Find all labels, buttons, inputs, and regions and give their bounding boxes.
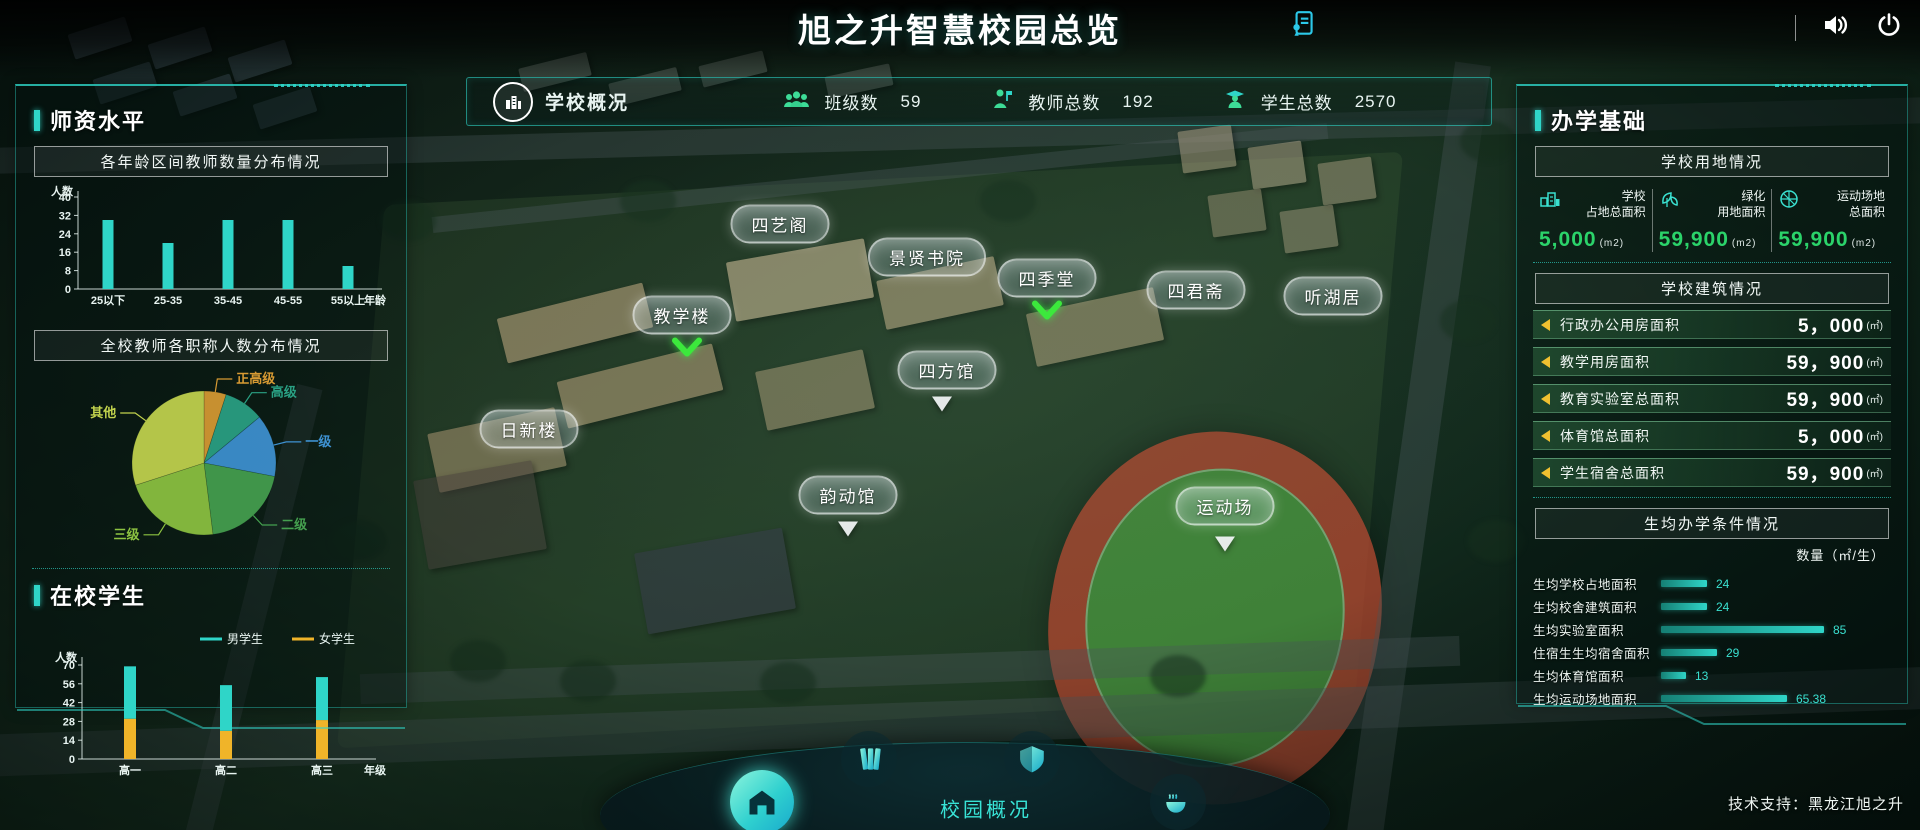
right-panel-separator: [1533, 262, 1891, 263]
teachers-panel: 师资水平 各年龄区间教师数量分布情况 人数081624324025以下25-35…: [15, 84, 407, 708]
per-student-row: 生均实验室面积85: [1533, 618, 1891, 641]
land-stat: 绿化用地面积59,900(m2): [1653, 189, 1773, 252]
stat-label: 班级数: [824, 89, 878, 114]
map-building-label[interactable]: 韵动馆: [799, 476, 898, 515]
nav-security-icon[interactable]: [1004, 731, 1060, 787]
yellow-arrow-icon: [1541, 356, 1550, 368]
yellow-arrow-icon: [1541, 319, 1550, 331]
land-stat-unit: (m2): [1732, 238, 1757, 249]
map-building-label[interactable]: 运动场: [1176, 487, 1275, 526]
per-student-bar: [1661, 580, 1707, 587]
per-student-value: 29: [1726, 646, 1739, 660]
land-stat-unit: (m2): [1600, 238, 1625, 249]
building-row-unit: (㎡): [1866, 391, 1883, 406]
svg-text:8: 8: [65, 266, 71, 278]
per-student-bar: [1661, 649, 1717, 656]
section-accent-bar: [1535, 110, 1541, 131]
svg-text:年级: 年级: [364, 763, 387, 777]
svg-text:28: 28: [63, 716, 75, 728]
white-location-marker: [838, 522, 858, 537]
section-accent-bar: [34, 585, 40, 606]
per-student-label: 生均学校占地面积: [1533, 574, 1661, 593]
nav-library-icon[interactable]: [841, 731, 897, 787]
building-row-unit: (㎡): [1866, 465, 1883, 480]
svg-text:女学生: 女学生: [319, 631, 355, 646]
school-basis-panel: 办学基础 学校用地情况 学校占地总面积5,000(m2)绿化用地面积59,900…: [1516, 84, 1908, 704]
sports-ground-icon: [1778, 189, 1800, 214]
per-student-box-title: 生均办学条件情况: [1535, 508, 1889, 539]
stat-value: 2570: [1355, 92, 1397, 112]
svg-text:55以上: 55以上: [331, 293, 365, 307]
per-student-label: 生均体育馆面积: [1533, 666, 1661, 685]
building-row-unit: (㎡): [1866, 317, 1883, 332]
students-section-title: 在校学生: [50, 579, 146, 611]
svg-text:高一: 高一: [119, 763, 141, 777]
building-rows: 行政办公用房面积5，000(㎡)教学用房面积59，900(㎡)教育实验室总面积5…: [1533, 310, 1891, 487]
speaker-icon[interactable]: [1822, 12, 1850, 43]
building-row: 学生宿舍总面积59，900(㎡): [1533, 458, 1891, 487]
svg-text:45-55: 45-55: [274, 295, 302, 307]
smart-campus-dashboard: 旭之升智慧校园总览: [0, 0, 1920, 830]
land-stat-label: 学校占地总面积: [1586, 189, 1646, 220]
land-stat-label: 运动场地总面积: [1837, 189, 1885, 220]
svg-text:0: 0: [65, 284, 71, 296]
per-student-unit-label: 数量（㎡/生）: [1533, 545, 1885, 564]
teacher-icon: [990, 87, 1014, 116]
nav-dining-icon[interactable]: [1150, 774, 1206, 830]
per-student-value: 85: [1833, 623, 1846, 637]
svg-text:14: 14: [63, 735, 76, 747]
svg-text:25以下: 25以下: [91, 294, 125, 307]
svg-text:0: 0: [69, 754, 75, 766]
greenery-icon: [1659, 189, 1681, 214]
svg-text:高二: 高二: [215, 763, 237, 777]
section-accent-bar: [34, 110, 40, 131]
per-student-row: 生均校舍建筑面积24: [1533, 595, 1891, 618]
land-stat-unit: (m2): [1852, 238, 1877, 249]
map-building-label[interactable]: 听湖居: [1284, 277, 1383, 316]
building-row-label: 体育馆总面积: [1560, 426, 1798, 446]
svg-text:70: 70: [63, 660, 75, 672]
page-title: 旭之升智慧校园总览: [798, 4, 1122, 52]
per-student-bar: [1661, 626, 1824, 633]
land-stats: 学校占地总面积5,000(m2)绿化用地面积59,900(m2)运动场地总面积5…: [1533, 189, 1891, 252]
yellow-arrow-icon: [1541, 393, 1550, 405]
building-row: 行政办公用房面积5，000(㎡): [1533, 310, 1891, 339]
building-box-title: 学校建筑情况: [1535, 273, 1889, 304]
students-stacked-bar-chart: 男学生女学生人数01428425670高一高二高三年级: [32, 621, 390, 794]
building-row-unit: (㎡): [1866, 428, 1883, 443]
map-building-label[interactable]: 日新楼: [480, 410, 579, 449]
svg-text:一级: 一级: [305, 434, 332, 449]
land-box-title: 学校用地情况: [1535, 146, 1889, 177]
per-student-value: 13: [1695, 669, 1708, 683]
left-panel-separator: [32, 568, 390, 569]
building-row: 教学用房面积59，900(㎡): [1533, 347, 1891, 376]
svg-text:高三: 高三: [311, 763, 333, 777]
stat-item: 教师总数192: [990, 87, 1153, 116]
svg-text:其他: 其他: [90, 405, 116, 420]
svg-text:42: 42: [63, 698, 75, 710]
per-student-label: 住宿生生均宿舍面积: [1533, 643, 1661, 662]
svg-text:40: 40: [59, 192, 71, 204]
per-student-label: 生均实验室面积: [1533, 620, 1661, 639]
svg-text:35-45: 35-45: [214, 295, 242, 307]
land-stat-top: 学校占地总面积: [1539, 189, 1646, 220]
per-student-bar: [1661, 672, 1686, 679]
teacher-age-bar-chart: 人数081624324025以下25-3535-4545-5555以上年龄: [32, 183, 390, 324]
stat-label: 学生总数: [1261, 89, 1333, 114]
right-panel-separator: [1533, 497, 1891, 498]
building-row-value: 59，900: [1786, 459, 1864, 486]
map-building-label[interactable]: 景贤书院: [868, 238, 986, 277]
land-stat-label: 绿化用地面积: [1717, 189, 1765, 220]
per-student-bar-chart: 生均学校占地面积24生均校舍建筑面积24生均实验室面积85住宿生生均宿舍面积29…: [1533, 572, 1891, 710]
building-row-label: 学生宿舍总面积: [1560, 463, 1786, 483]
map-building-label[interactable]: 四季堂: [998, 259, 1097, 298]
land-stat-top: 运动场地总面积: [1778, 189, 1885, 220]
building-row-label: 教学用房面积: [1560, 352, 1786, 372]
building-row-label: 行政办公用房面积: [1560, 315, 1798, 335]
building-row: 体育馆总面积5，000(㎡): [1533, 421, 1891, 450]
class-group-icon: [783, 88, 810, 115]
per-student-label: 生均运动场地面积: [1533, 689, 1661, 708]
svg-text:二级: 二级: [281, 517, 308, 532]
age-chart-title: 各年龄区间教师数量分布情况: [34, 146, 388, 177]
per-student-value: 65.38: [1796, 692, 1826, 706]
per-student-bar: [1661, 603, 1707, 610]
svg-text:25-35: 25-35: [154, 295, 182, 307]
student-icon: [1223, 87, 1247, 116]
per-student-row: 生均学校占地面积24: [1533, 572, 1891, 595]
per-student-bar: [1661, 695, 1787, 702]
green-location-marker: [672, 338, 702, 363]
svg-text:三级: 三级: [113, 527, 140, 542]
teachers-section-title: 师资水平: [50, 104, 146, 136]
building-row-unit: (㎡): [1866, 354, 1883, 369]
svg-text:56: 56: [63, 679, 75, 691]
per-student-label: 生均校舍建筑面积: [1533, 597, 1661, 616]
building-row-value: 59，900: [1786, 385, 1864, 412]
header-divider: [1795, 15, 1796, 41]
map-building-label[interactable]: 四君斋: [1147, 271, 1246, 310]
map-building-label[interactable]: 四方馆: [898, 351, 997, 390]
land-stat-value: 59,900(m2): [1778, 228, 1885, 252]
building-row: 教育实验室总面积59，900(㎡): [1533, 384, 1891, 413]
building-row-value: 5，000: [1798, 311, 1864, 338]
svg-text:24: 24: [59, 229, 72, 241]
stat-item: 班级数59: [783, 87, 921, 116]
svg-text:32: 32: [59, 210, 71, 222]
tech-support-text: 技术支持：黑龙江旭之升: [1728, 793, 1904, 814]
stats-items: 班级数59教师总数192学生总数2570: [749, 87, 1431, 116]
school-stats-bar: 学校概况 班级数59教师总数192学生总数2570: [466, 77, 1492, 126]
svg-text:男学生: 男学生: [227, 631, 263, 646]
building-row-label: 教育实验室总面积: [1560, 389, 1786, 409]
svg-text:高级: 高级: [271, 385, 298, 400]
white-location-marker: [932, 397, 952, 412]
nav-campus-overview-icon[interactable]: [730, 770, 794, 830]
yellow-arrow-icon: [1541, 467, 1550, 479]
green-location-marker: [1032, 301, 1062, 326]
building-row-value: 59，900: [1786, 348, 1864, 375]
stat-value: 59: [900, 92, 921, 112]
report-doc-icon[interactable]: [1288, 9, 1318, 44]
stat-label: 教师总数: [1028, 89, 1100, 114]
land-stat: 学校占地总面积5,000(m2): [1533, 189, 1653, 252]
per-student-value: 24: [1716, 577, 1729, 591]
land-stat-value: 5,000(m2): [1539, 228, 1646, 252]
land-stat-value: 59,900(m2): [1659, 228, 1766, 252]
per-student-row: 生均体育馆面积13: [1533, 664, 1891, 687]
school-overview-icon: [493, 82, 533, 122]
svg-text:年龄: 年龄: [364, 293, 387, 307]
title-chart-title: 全校教师各职称人数分布情况: [34, 330, 388, 361]
white-location-marker: [1215, 537, 1235, 552]
school-building-icon: [1539, 189, 1561, 214]
per-student-row: 生均运动场地面积65.38: [1533, 687, 1891, 710]
yellow-arrow-icon: [1541, 430, 1550, 442]
svg-text:16: 16: [59, 247, 71, 259]
map-building-label[interactable]: 四艺阁: [731, 205, 830, 244]
map-building-label[interactable]: 教学楼: [633, 296, 732, 335]
stat-value: 192: [1122, 92, 1153, 112]
school-overview-label: 学校概况: [545, 88, 629, 115]
teacher-title-pie-chart: 正高级高级一级二级三级其他: [32, 367, 390, 558]
land-stat-top: 绿化用地面积: [1659, 189, 1766, 220]
building-row-value: 5，000: [1798, 422, 1864, 449]
per-student-value: 24: [1716, 600, 1729, 614]
nav-active-label[interactable]: 校园概况: [940, 794, 1032, 823]
basis-section-title: 办学基础: [1551, 104, 1647, 136]
power-icon[interactable]: [1876, 12, 1902, 43]
per-student-row: 住宿生生均宿舍面积29: [1533, 641, 1891, 664]
land-stat: 运动场地总面积59,900(m2): [1772, 189, 1891, 252]
stat-item: 学生总数2570: [1223, 87, 1397, 116]
